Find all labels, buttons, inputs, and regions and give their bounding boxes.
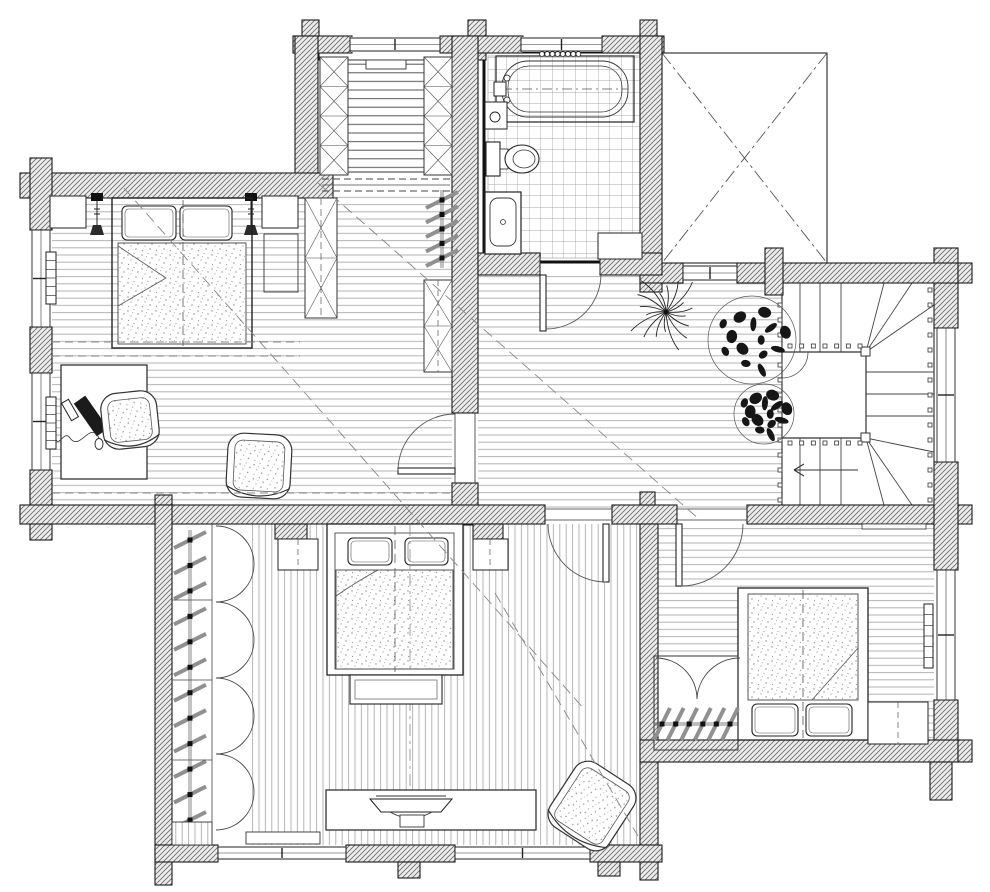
- log-end: [598, 862, 620, 876]
- log-end: [958, 263, 972, 283]
- bed2-mattress: [336, 570, 453, 669]
- window-bench: [246, 832, 320, 844]
- radiator: [46, 252, 56, 304]
- hall-opening: [683, 265, 737, 281]
- bathtub-tap: [504, 75, 510, 81]
- pillow: [122, 206, 176, 240]
- window: [521, 37, 602, 52]
- bed-bench: [350, 675, 442, 704]
- window: [455, 846, 590, 860]
- partition-stub: [275, 524, 307, 539]
- log-end: [640, 492, 655, 505]
- dresser-low: [264, 234, 298, 292]
- bed1-mattress: [118, 243, 246, 344]
- shoe-rack: [172, 822, 212, 845]
- tv: [370, 799, 452, 812]
- toilet-bowl: [505, 145, 539, 173]
- wall-west: [30, 327, 52, 373]
- partition-stub: [473, 524, 503, 539]
- wall-east: [934, 248, 958, 328]
- window: [218, 846, 346, 860]
- office-chair: [99, 389, 161, 451]
- wall-east: [934, 700, 958, 740]
- radiator: [924, 604, 933, 668]
- pillow: [348, 538, 392, 565]
- toilet-tank: [486, 142, 500, 176]
- log-end: [155, 495, 172, 505]
- pillow: [806, 704, 852, 736]
- pillow: [405, 538, 448, 565]
- armchair: [225, 432, 292, 499]
- floor-hall: [478, 275, 782, 508]
- radiator: [46, 397, 56, 449]
- wall-hall-south: [20, 505, 545, 524]
- wall-west: [30, 158, 52, 230]
- door-leaf: [398, 468, 455, 474]
- nightstand: [473, 539, 508, 570]
- wall-hall-south: [612, 505, 677, 524]
- wall-south: [346, 845, 455, 862]
- window: [936, 570, 956, 700]
- door-leaf: [676, 524, 682, 586]
- wall-east: [934, 462, 958, 570]
- pillow: [180, 206, 232, 240]
- window: [936, 328, 956, 462]
- closet-dresser-handle: [366, 60, 406, 69]
- log-end: [765, 248, 783, 295]
- closet-shelves: [320, 57, 348, 175]
- nightstand: [50, 196, 86, 228]
- mouse: [95, 439, 103, 450]
- shower-step: [598, 233, 642, 259]
- wall-bedroom1-north: [20, 173, 333, 198]
- closet-shelves: [424, 57, 452, 175]
- log-end: [398, 862, 420, 878]
- floor-plan-screenshot: [0, 0, 990, 892]
- door-leaf: [540, 275, 546, 331]
- toilet-roll: [490, 112, 500, 122]
- wall-south: [155, 845, 218, 862]
- log-end: [930, 762, 952, 800]
- closet-dresser: [348, 60, 424, 172]
- curtain-rail: [862, 524, 926, 529]
- wall-bathroom-south: [478, 253, 540, 275]
- wall-bedroom1-east: [452, 36, 478, 413]
- pillow: [752, 704, 798, 736]
- wall-wardrobe-west: [155, 505, 172, 885]
- wall-bedrooms-divider: [640, 524, 658, 880]
- floor-plan-canvas: [0, 0, 990, 892]
- stair-balusters: [928, 288, 932, 502]
- door-leaf: [603, 524, 609, 582]
- bathtub-faucet: [494, 82, 506, 96]
- tv-stand: [400, 815, 424, 827]
- log-end: [958, 740, 972, 762]
- nightstand: [262, 196, 298, 228]
- window: [350, 37, 440, 52]
